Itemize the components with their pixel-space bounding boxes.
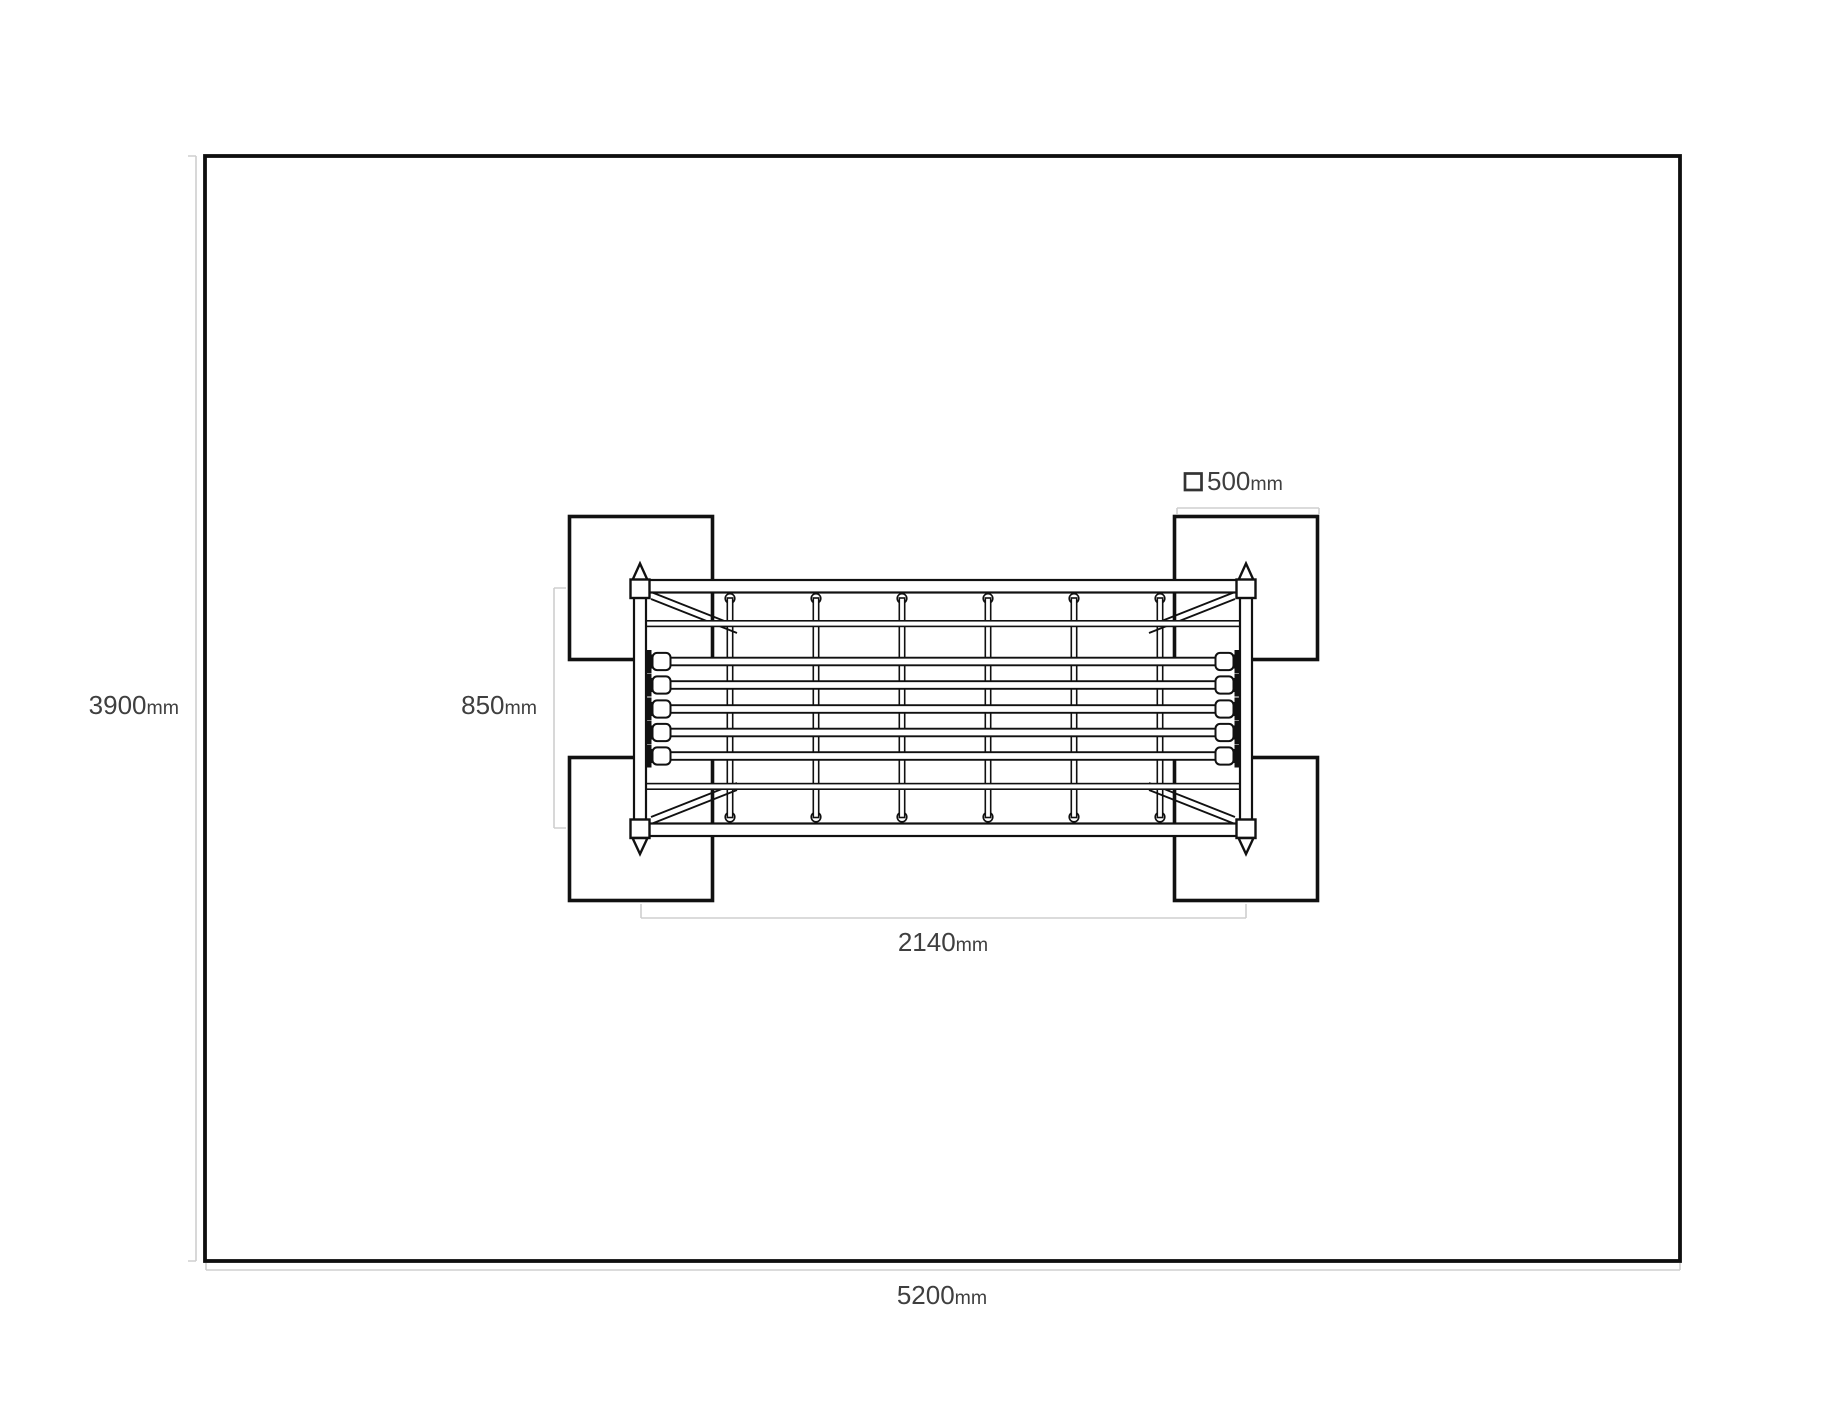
post-cap-bottom-left (631, 820, 650, 855)
equipment-depth-dimension-line (554, 588, 566, 828)
pad-size-label-group: 500mm (1185, 466, 1283, 496)
installation-drawing: 3900mm 5200mm 850mm 2140mm 500mm (0, 0, 1843, 1417)
inner-rail-top (646, 621, 1240, 627)
clamp-right (1216, 674, 1242, 697)
clamp-left (645, 698, 671, 721)
clamp-right (1216, 650, 1242, 673)
main-rail-bottom (644, 824, 1242, 837)
post-cap-top-right (1237, 564, 1256, 599)
clamp-left (645, 674, 671, 697)
clamp-right (1216, 745, 1242, 768)
post-cap-top-left (631, 564, 650, 599)
area-depth-label: 3900mm (89, 690, 179, 720)
clamp-bar (671, 729, 1216, 737)
clamp-bars (671, 658, 1216, 760)
main-post-left (634, 582, 646, 834)
drawing-canvas: 3900mm 5200mm 850mm 2140mm 500mm (0, 0, 1843, 1417)
equipment-top-view (631, 564, 1256, 855)
clamp-bar (671, 681, 1216, 689)
main-rail-top (644, 580, 1242, 593)
clamp-bar (671, 705, 1216, 713)
area-width-dimension-line (206, 1263, 1680, 1270)
clamp-right (1216, 721, 1242, 744)
area-depth-dimension-line (188, 156, 196, 1261)
inner-rail-bottom (646, 784, 1240, 790)
clamp-left (645, 650, 671, 673)
post-cap-bottom-right (1237, 820, 1256, 855)
clamp-left (645, 745, 671, 768)
equipment-depth-label: 850mm (461, 690, 537, 720)
equipment-span-dimension-line (641, 904, 1246, 918)
pad-size-dimension-line (1177, 508, 1319, 514)
main-post-right (1240, 582, 1252, 834)
pad-square-icon (1185, 474, 1202, 491)
area-width-label: 5200mm (897, 1280, 987, 1310)
clamp-right (1216, 698, 1242, 721)
equipment-span-label: 2140mm (898, 927, 988, 957)
clamp-bar (671, 658, 1216, 666)
pad-size-label: 500mm (1207, 466, 1283, 496)
clamp-left (645, 721, 671, 744)
clamp-bar (671, 752, 1216, 760)
